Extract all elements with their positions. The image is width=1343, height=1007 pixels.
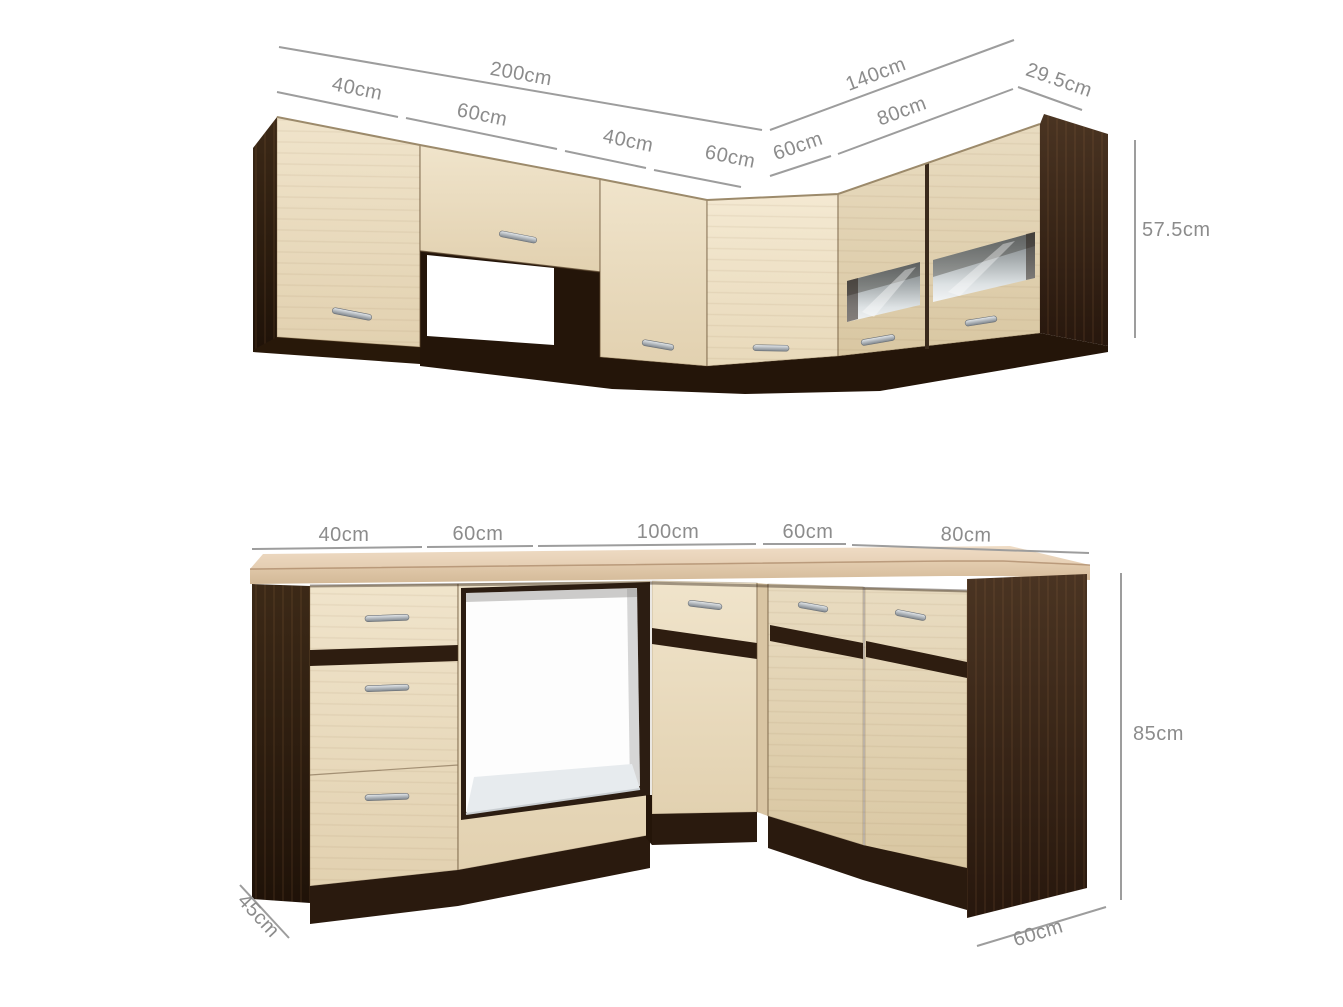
door-handle xyxy=(753,345,789,352)
dim-base-height: 85cm xyxy=(1133,723,1184,745)
drawer-handle xyxy=(365,614,409,622)
background xyxy=(0,0,1343,1007)
product-dimension-image: 200cm 40cm 60cm 40cm 60cm 140cm 60cm 80c… xyxy=(0,0,1343,1007)
hood-opening xyxy=(427,255,554,345)
dim-base-seg-0: 40cm xyxy=(319,524,370,546)
corner-base-door xyxy=(652,581,757,814)
wall-cabinet-door-40b xyxy=(600,179,707,366)
dim-base-seg-1: 60cm xyxy=(453,523,504,545)
drawer-cabinet-grain xyxy=(310,584,458,886)
kitchen-set-dimension-illustration: 200cm 40cm 60cm 40cm 60cm 140cm 60cm 80c… xyxy=(0,0,1343,1007)
dim-line-base-seg-1 xyxy=(427,546,533,547)
base-right-side-panel-grain xyxy=(967,574,1087,918)
glass-side-shadow xyxy=(847,278,858,322)
dim-upper-height: 57.5cm xyxy=(1142,219,1211,241)
corner-bend-filler xyxy=(757,583,768,816)
bay-step-edge xyxy=(646,795,652,845)
upper-left-side-panel-grain xyxy=(253,117,277,350)
drawer-handle xyxy=(365,793,409,801)
dim-base-seg-2: 100cm xyxy=(637,521,700,543)
base-left-side-panel-grain xyxy=(252,584,310,903)
corner-wall-cabinet-grain xyxy=(707,194,838,366)
dim-base-seg-4: 80cm xyxy=(940,523,991,546)
glass-side-shadow xyxy=(1026,232,1035,280)
drawer-handle xyxy=(365,684,409,692)
dim-base-seg-3: 60cm xyxy=(783,521,834,543)
upper-right-side-panel-grain xyxy=(1040,114,1108,346)
plinth-corner xyxy=(652,812,757,845)
